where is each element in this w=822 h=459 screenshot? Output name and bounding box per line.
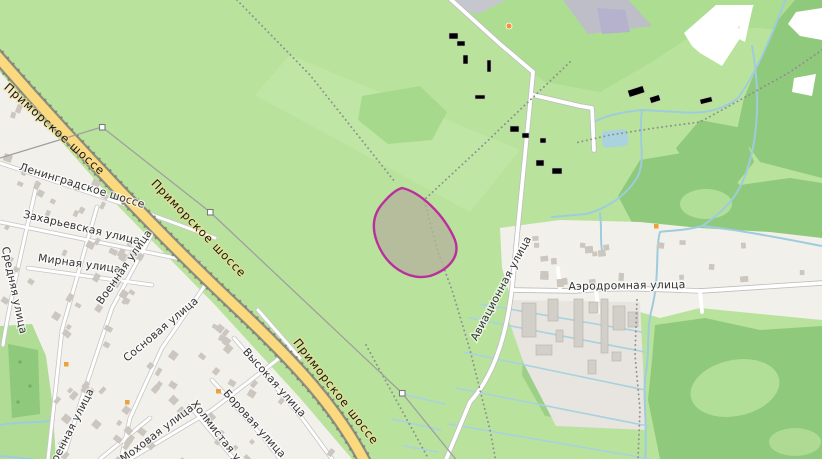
pond [601,129,629,149]
poi-dot [506,23,512,29]
road-label-aerodromnaya: Аэродромная улица [568,278,685,293]
map-canvas[interactable]: Приморское шоссе Приморское шоссе Примор… [0,0,822,459]
way-vertex-marker[interactable] [400,391,406,397]
way-vertex-marker[interactable] [208,210,214,216]
way-vertex-marker[interactable] [100,125,106,131]
